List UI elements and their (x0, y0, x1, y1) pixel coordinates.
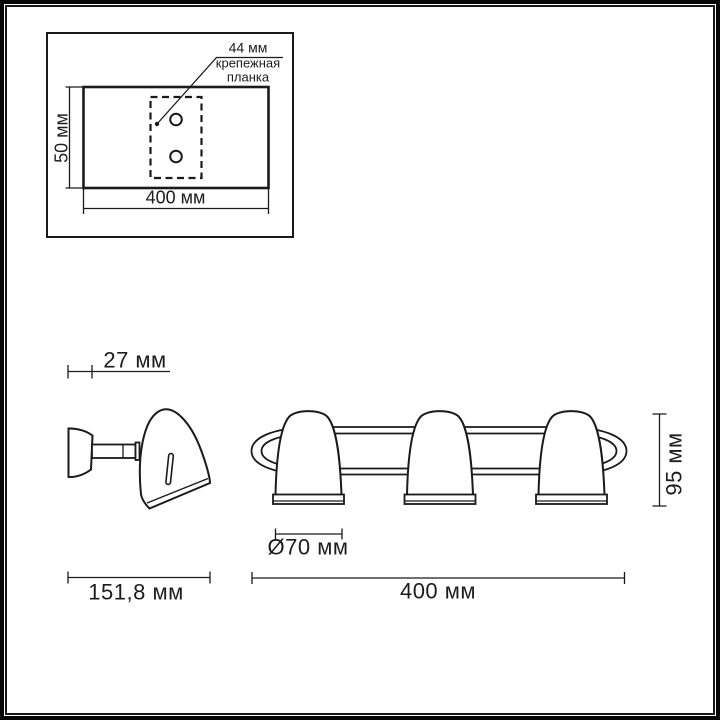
shade-front-2 (405, 411, 476, 504)
wall-canopy-outline (69, 428, 93, 477)
arm-outline (92, 443, 140, 461)
template-height-label: 50 мм (53, 113, 72, 163)
mounting-bracket-label-line1: крепежная (216, 56, 280, 70)
bracket-depth-label: 27 мм (103, 348, 166, 371)
front-height-label: 95 мм (662, 432, 685, 495)
hole-spacing-label: 44 мм (229, 41, 268, 56)
mounting-bracket-label: крепежная планка (216, 56, 280, 83)
shade-side-outline (140, 409, 210, 508)
callout-leader-dot (155, 122, 159, 126)
front-overall-width-label: 400 мм (400, 579, 476, 602)
side-view (68, 365, 210, 584)
shade-front-1 (273, 411, 344, 504)
shade-front-3 (536, 411, 607, 504)
template-width-label: 400 мм (146, 189, 206, 208)
technical-drawing-page: 44 мм крепежная планка 50 мм 400 мм 27 м… (0, 0, 720, 720)
shade-diameter-label: Ø70 мм (268, 535, 349, 558)
screw-hole-top (170, 114, 182, 126)
screw-hole-bottom (170, 151, 182, 163)
mounting-bracket-label-line2: планка (216, 70, 280, 84)
mounting-plate-dashed-outline (151, 97, 202, 178)
overall-depth-label: 151,8 мм (88, 580, 183, 603)
